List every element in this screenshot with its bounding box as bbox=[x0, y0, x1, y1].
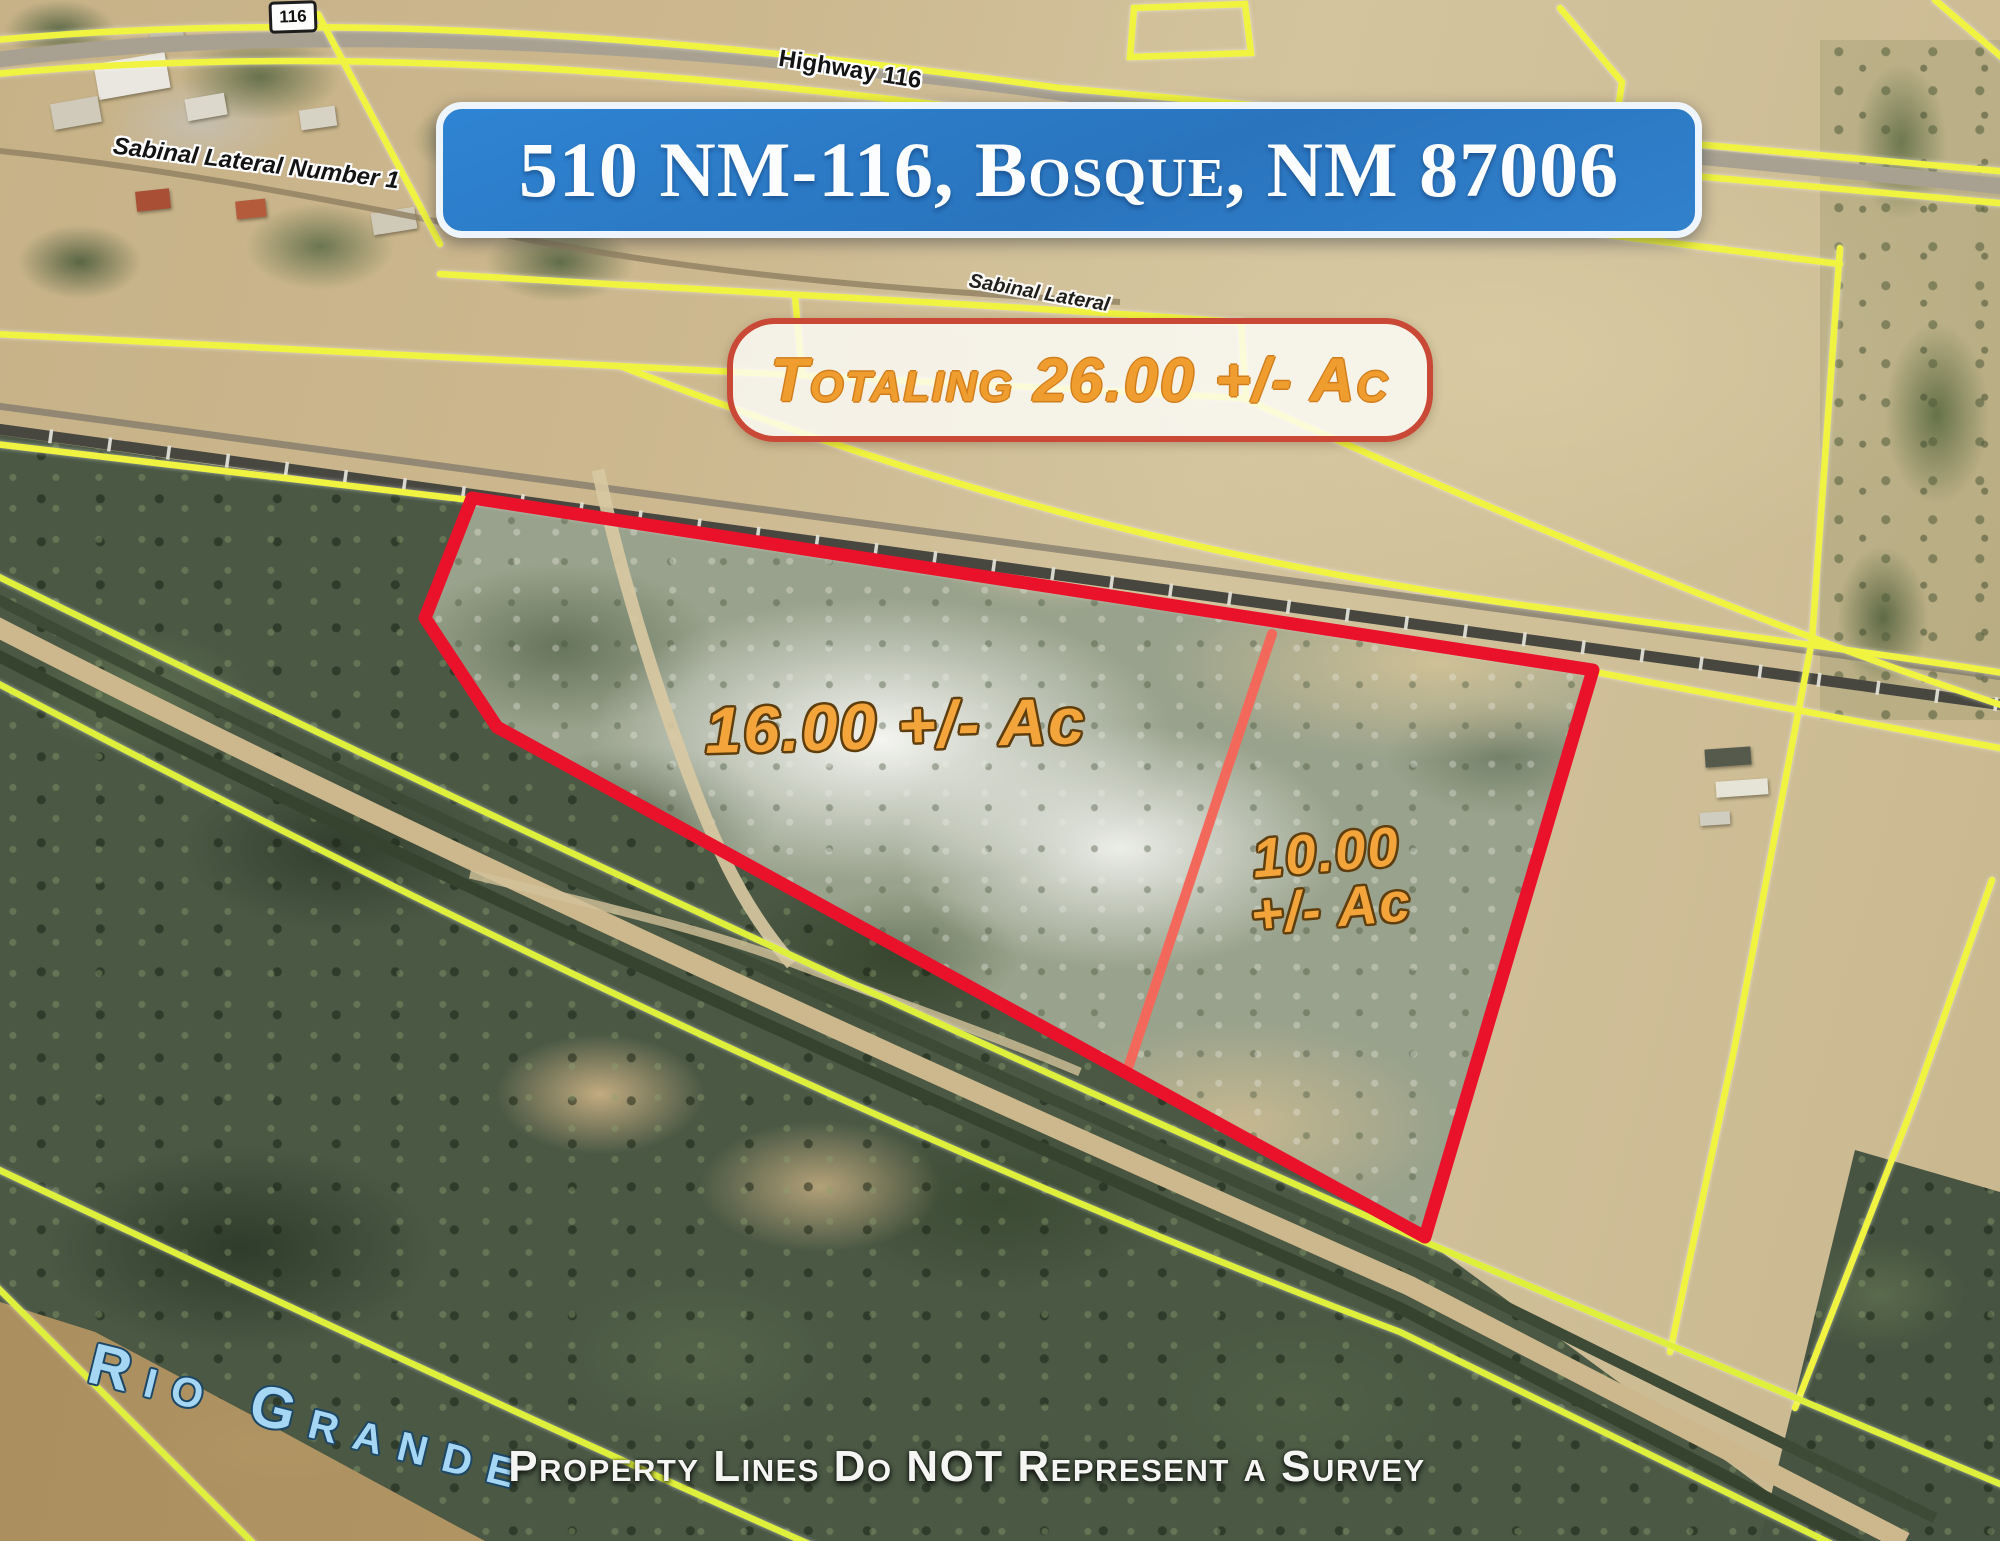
parcel-line bbox=[1935, 0, 2000, 60]
parcel-line bbox=[1130, 4, 1251, 57]
parcel-10ac-line2: +/- Ac bbox=[1248, 873, 1414, 943]
route-shield-number: 116 bbox=[279, 7, 307, 28]
total-acreage-text: Totaling 26.00 +/- Ac bbox=[771, 345, 1390, 415]
address-banner: 510 NM-116, Bosque, NM 87006 bbox=[436, 102, 1702, 238]
parcel-line bbox=[1670, 248, 1840, 1352]
total-acreage-callout: Totaling 26.00 +/- Ac bbox=[727, 318, 1433, 442]
parcel-16ac-label: 16.00 +/- Ac bbox=[704, 683, 1087, 768]
parcel-10ac-label: 10.00 +/- Ac bbox=[1243, 817, 1413, 943]
address-text: 510 NM-116, Bosque, NM 87006 bbox=[519, 125, 1619, 215]
parcel-line bbox=[1795, 880, 1992, 1408]
survey-disclaimer: Property Lines Do NOT Represent a Survey bbox=[432, 1442, 1502, 1492]
aerial-map-canvas: 116 Highway 116 Sabinal Lateral Number 1… bbox=[0, 0, 2000, 1541]
route-shield-116: 116 bbox=[268, 0, 317, 34]
frontage-road bbox=[0, 405, 2000, 678]
